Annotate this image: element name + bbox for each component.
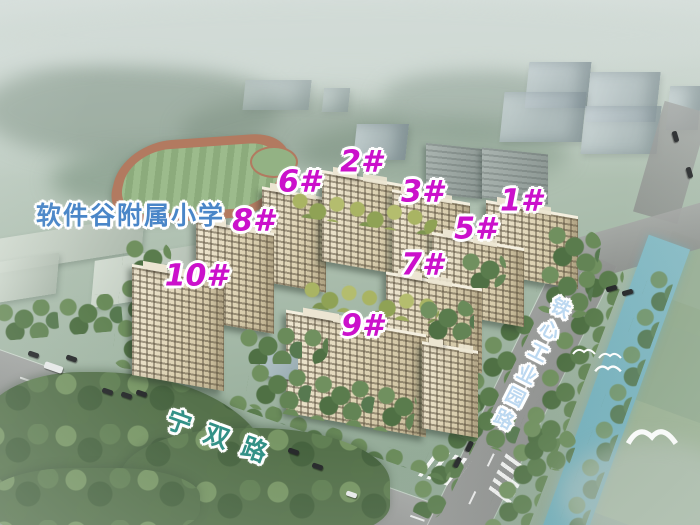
massing-block	[322, 88, 351, 112]
bird-icon	[572, 346, 596, 358]
forest	[0, 468, 200, 525]
school-building	[0, 252, 59, 303]
massing-block	[499, 92, 586, 142]
car	[27, 350, 39, 358]
haze-fog-top	[0, 0, 700, 70]
school-label: 软件谷附属小学	[36, 196, 225, 232]
building-label-1: 1#	[500, 184, 542, 219]
building-label-3: 3#	[401, 175, 443, 210]
building-9-wing	[422, 341, 478, 438]
building-label-5: 5#	[454, 212, 496, 247]
bird-icon	[594, 362, 622, 376]
aerial-rendering: 软件谷附属小学 宁双路 铁心工业园路 2# 6# 3# 1# 8# 5# 7# …	[0, 0, 700, 525]
roadside-trees	[0, 292, 125, 341]
building-label-9: 9#	[341, 309, 383, 344]
building-label-8: 8#	[232, 204, 274, 239]
courtyard-trees	[418, 300, 474, 340]
building-label-7: 7#	[401, 248, 443, 283]
massing-block	[580, 106, 661, 154]
building-label-2: 2#	[340, 145, 382, 180]
bird-icon	[598, 350, 622, 362]
building-label-10: 10#	[165, 259, 228, 294]
bird-icon	[626, 424, 678, 450]
massing-block	[242, 80, 311, 110]
courtyard-trees	[238, 328, 328, 364]
car	[65, 354, 77, 362]
courtyard-trees	[460, 252, 506, 288]
building-label-6: 6#	[278, 165, 320, 200]
